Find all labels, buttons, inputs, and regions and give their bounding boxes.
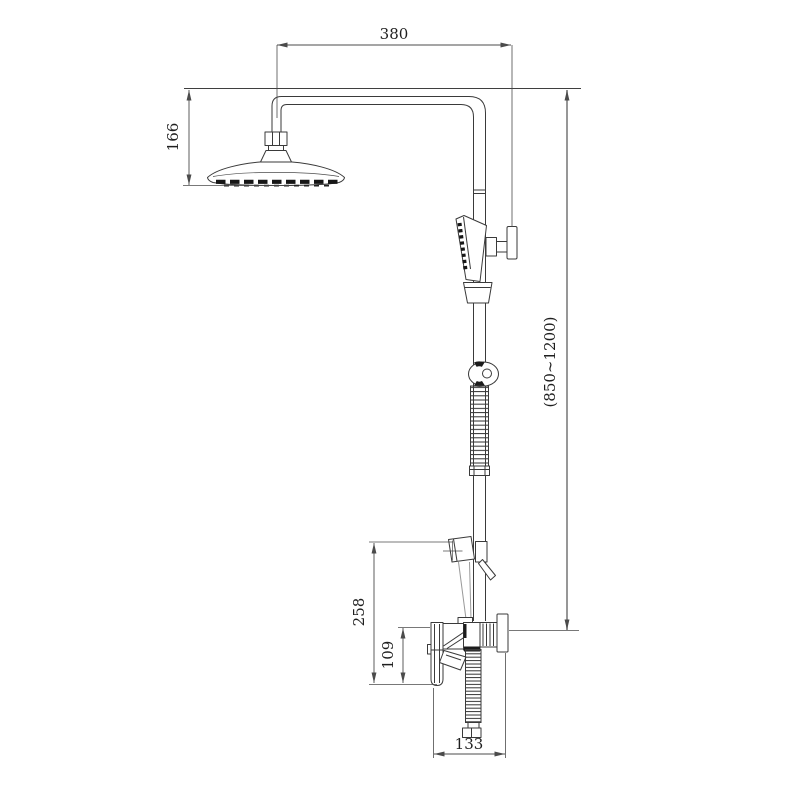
dim-label-166: 166: [164, 123, 182, 152]
mixer-handle-lip: [428, 645, 432, 655]
mixer-handle: [431, 623, 443, 686]
drawing-background: [0, 0, 800, 800]
dim-label-133: 133: [455, 735, 484, 753]
bracket-collar: [486, 238, 497, 257]
hose-fitting: [470, 466, 490, 476]
dim-label-height-range: (850~1200): [541, 316, 559, 407]
shower-set-technical-drawing: 380 166 (850~1200) 258 109 133: [0, 0, 800, 800]
hose-ribbed-section: [471, 386, 489, 466]
arm-connector-nut: [265, 132, 287, 146]
mixer-wall-flange: [497, 614, 508, 652]
dim-label-380: 380: [380, 25, 409, 43]
head-cone: [261, 151, 292, 163]
dim-label-258: 258: [350, 598, 368, 627]
slider-ball: [469, 361, 499, 387]
outlet-hose-ribbed: [466, 650, 482, 723]
upper-shower-hose: [470, 386, 490, 476]
sprayer-clip: [476, 542, 488, 563]
bracket-neck: [497, 242, 508, 253]
head-collar: [269, 146, 284, 151]
bracket-wall-flange: [507, 227, 517, 260]
outlet-hose-neck: [468, 723, 479, 729]
drawing-canvas: 380 166 (850~1200) 258 109 133: [0, 0, 800, 800]
dim-label-109: 109: [379, 641, 397, 670]
cartridge-shadow-left: [464, 624, 467, 638]
hand-shower-holder: [464, 283, 493, 304]
slider-ball-body: [469, 362, 499, 386]
